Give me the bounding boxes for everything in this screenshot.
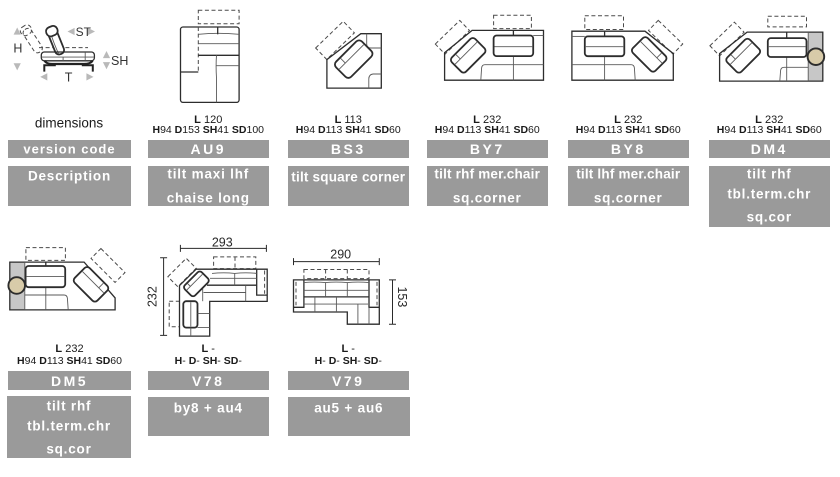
svg-text:SH: SH [111,54,128,68]
svg-text:232: 232 [146,286,160,307]
svg-text:293: 293 [212,236,233,250]
svg-text:153: 153 [395,286,409,307]
svg-text:T: T [65,70,73,84]
svg-text:290: 290 [330,247,351,261]
svg-text:H: H [13,42,22,56]
svg-text:ST: ST [76,25,92,39]
